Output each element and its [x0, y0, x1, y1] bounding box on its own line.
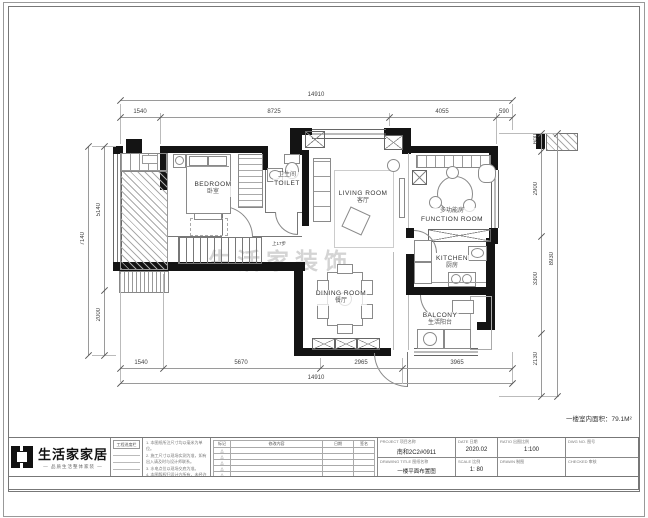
project-cell: PROJECT 项目名称 南和2C2#0911 DRAWING TITLE 图纸… [378, 438, 456, 476]
chair [361, 304, 373, 319]
tv-cabinet [399, 178, 405, 218]
progress-row [113, 456, 140, 463]
outdoor-unit-hatch [119, 271, 169, 293]
extension-line [499, 396, 559, 397]
dim-line-left-segments [104, 146, 105, 355]
floor-lamp [387, 159, 400, 172]
wall-segment [126, 139, 142, 153]
drawn-half: DRAWN 制图 [498, 457, 565, 476]
ratio-half: RATIO 出图比例 1:100 [498, 438, 565, 457]
window-dining-bottom [356, 338, 380, 350]
window-dining-bottom [334, 338, 358, 350]
ratio-value: 1:100 [498, 447, 565, 453]
door-leaf [407, 352, 408, 387]
progress-row [113, 449, 140, 456]
wall-segment [290, 133, 302, 155]
dim-right-overall: 8930 [549, 252, 555, 265]
pillow [208, 156, 227, 166]
chair [446, 166, 459, 179]
cloakroom-floor [120, 170, 168, 270]
title-block: 生活家家居 — 品质生活整体家装 — 工程进度栏 1. 本图纸所注尺寸均以毫米为… [8, 437, 639, 477]
counter-pass-through [428, 229, 491, 242]
brand-cell: 生活家家居 — 品质生活整体家装 — [9, 438, 111, 476]
room-label-bedroom: BEDROOM 卧室 [193, 181, 232, 197]
dim-line-left-overall [88, 146, 89, 355]
revision-row: △ [214, 472, 375, 477]
armchair [478, 164, 496, 183]
dim-top-seg: 590 [499, 109, 509, 115]
dim-right-seg: 3300 [533, 272, 539, 285]
date-label: DATE 日期 [458, 439, 477, 445]
window-dining-bottom [312, 338, 336, 350]
laundry-cabinet [444, 329, 471, 349]
bed-headboard-line [186, 166, 229, 167]
progress-table: 工程进度栏 [111, 438, 143, 476]
window-balcony-bottom [414, 348, 478, 356]
project-value: 南和2C2#0911 [378, 447, 455, 456]
rug [190, 218, 228, 236]
room-label-balcony: BALCONY 生活阳台 [422, 312, 459, 328]
dim-line-top-overall [120, 100, 512, 101]
partition-line [265, 170, 266, 212]
revision-header: 修改内容 [231, 441, 323, 448]
revision-header: 标记 [214, 441, 231, 448]
dwgno-checked-cell: DWG NO. 图号 CHECKED 审核 [566, 438, 638, 476]
note-line: 4. 本图版权归设计方所有，未经许可不得翻印。 [146, 472, 207, 476]
room-label-toilet: 卫生间 TOILET [273, 172, 301, 188]
revision-header: 日期 [323, 441, 354, 448]
note-line: 3. 水电点位以现场交底为准。 [146, 466, 207, 472]
wall-segment [406, 287, 490, 295]
dim-bottom-overall: 14910 [308, 375, 325, 381]
drawing-value: 一楼平面布置图 [378, 467, 455, 475]
living-rug [334, 170, 394, 248]
stair-note: 上17步 [272, 241, 286, 247]
boundary-line [408, 295, 409, 350]
revision-header: 签名 [354, 441, 375, 448]
area-note: 一楼室内面积：79.1M² [566, 413, 632, 423]
wall-segment [405, 146, 495, 153]
dim-bottom-seg: 2965 [354, 360, 367, 366]
sink-bowl [471, 248, 484, 258]
dim-left-overall: 7140 [80, 232, 86, 245]
dim-left-seg: 2000 [96, 308, 102, 321]
dim-left-seg: 5140 [96, 203, 102, 216]
project-label: PROJECT 项目名称 [380, 439, 416, 445]
boundary-line [393, 252, 394, 350]
progress-header: 工程进度栏 [113, 440, 140, 449]
dim-line-right-overall [557, 133, 558, 396]
drawing-sheet: 生活家装饰 上17步 [0, 0, 648, 518]
dim-bottom-seg: 5670 [234, 360, 247, 366]
dwgno-label: DWG NO. 图号 [568, 439, 595, 445]
chair [317, 304, 329, 319]
chair [337, 324, 353, 334]
dim-line-top-segments [120, 117, 512, 118]
extension-line [402, 358, 403, 384]
dim-top-seg: 4055 [435, 109, 448, 115]
extension-line [163, 274, 164, 368]
checked-label: CHECKED 审核 [568, 459, 597, 465]
extension-line [499, 133, 559, 134]
project-half: PROJECT 项目名称 南和2C2#0911 [378, 438, 455, 457]
room-label-kitchen: KITCHEN 厨房 [435, 255, 469, 271]
title-block-footer-strip [8, 477, 639, 490]
brand-logo-icon [11, 446, 33, 468]
date-scale-cell: DATE 日期 2020.02 SCALE 比例 1: 80 [456, 438, 498, 476]
drawn-label: DRAWN 制图 [500, 459, 524, 465]
dim-line-bottom-overall [120, 383, 512, 384]
dim-top-overall: 14910 [308, 92, 325, 98]
dim-top-seg: 1540 [133, 109, 146, 115]
bed-bench [194, 213, 222, 220]
fridge [414, 262, 432, 284]
dim-bottom-seg: 1540 [134, 360, 147, 366]
partition-line [265, 212, 275, 213]
sofa [313, 158, 331, 222]
ac-platform-hatch [546, 133, 578, 151]
date-half: DATE 日期 2020.02 [456, 438, 497, 457]
dim-right-seg: 2900 [533, 182, 539, 195]
door-leaf [297, 212, 298, 234]
scale-label: SCALE 比例 [458, 459, 480, 465]
dim-top-seg: 8725 [267, 109, 280, 115]
notes-cell: 1. 本图纸所注尺寸均以毫米为单位。 2. 施工尺寸以现场实测为准，如有出入请及… [143, 438, 211, 476]
column-box [305, 131, 325, 148]
checked-half: CHECKED 审核 [566, 457, 638, 476]
scale-half: SCALE 比例 1: 80 [456, 457, 497, 476]
speaker-box [412, 170, 427, 185]
room-label-function: 多功能房 FUNCTION ROOM [420, 208, 484, 224]
drawing-half: DRAWING TITLE 图纸名称 一楼平面布置图 [378, 457, 455, 476]
brand-name: 生活家家居 [38, 444, 108, 463]
column-box [384, 135, 403, 150]
staircase [178, 237, 262, 264]
date-value: 2020.02 [456, 447, 497, 453]
washer-drum [423, 332, 437, 346]
wall-segment [160, 146, 265, 153]
revision-table: 标记 修改内容 日期 签名 △ △ △ △ △ [211, 438, 378, 476]
dim-line-right-segments [541, 133, 542, 396]
dim-bottom-seg: 3965 [450, 360, 463, 366]
wall-segment [294, 262, 303, 356]
chair [337, 264, 353, 274]
revision-header-row: 标记 修改内容 日期 签名 [214, 441, 375, 448]
extension-line [120, 104, 121, 144]
drawing-label: DRAWING TITLE 图纸名称 [380, 459, 428, 465]
progress-row [113, 470, 140, 476]
note-line: 1. 本图纸所注尺寸均以毫米为单位。 [146, 440, 207, 453]
ratio-label: RATIO 出图比例 [500, 439, 529, 445]
boundary-line [408, 153, 409, 228]
note-line: 2. 施工尺寸以现场实测为准，如有出入请及时与设计师联系。 [146, 453, 207, 466]
wall-segment [302, 150, 309, 226]
pillow [189, 156, 208, 166]
dwgno-half: DWG NO. 图号 [566, 438, 638, 457]
ratio-drawn-cell: RATIO 出图比例 1:100 DRAWN 制图 [498, 438, 566, 476]
lamp [175, 156, 184, 165]
room-label-dining: DINING ROOM 餐厅 [315, 290, 367, 306]
brand-tagline: — 品质生活整体家装 — [38, 464, 108, 470]
wardrobe [238, 154, 263, 208]
progress-row [113, 463, 140, 470]
room-label-living: LIVING ROOM 客厅 [338, 190, 389, 206]
kitchen-cabinet [414, 240, 432, 262]
closet-box [142, 155, 158, 164]
wall-segment [406, 228, 414, 238]
scale-value: 1: 80 [456, 467, 497, 473]
dim-line-bottom-segments [120, 368, 512, 369]
dim-right-seg: 2130 [533, 352, 539, 365]
